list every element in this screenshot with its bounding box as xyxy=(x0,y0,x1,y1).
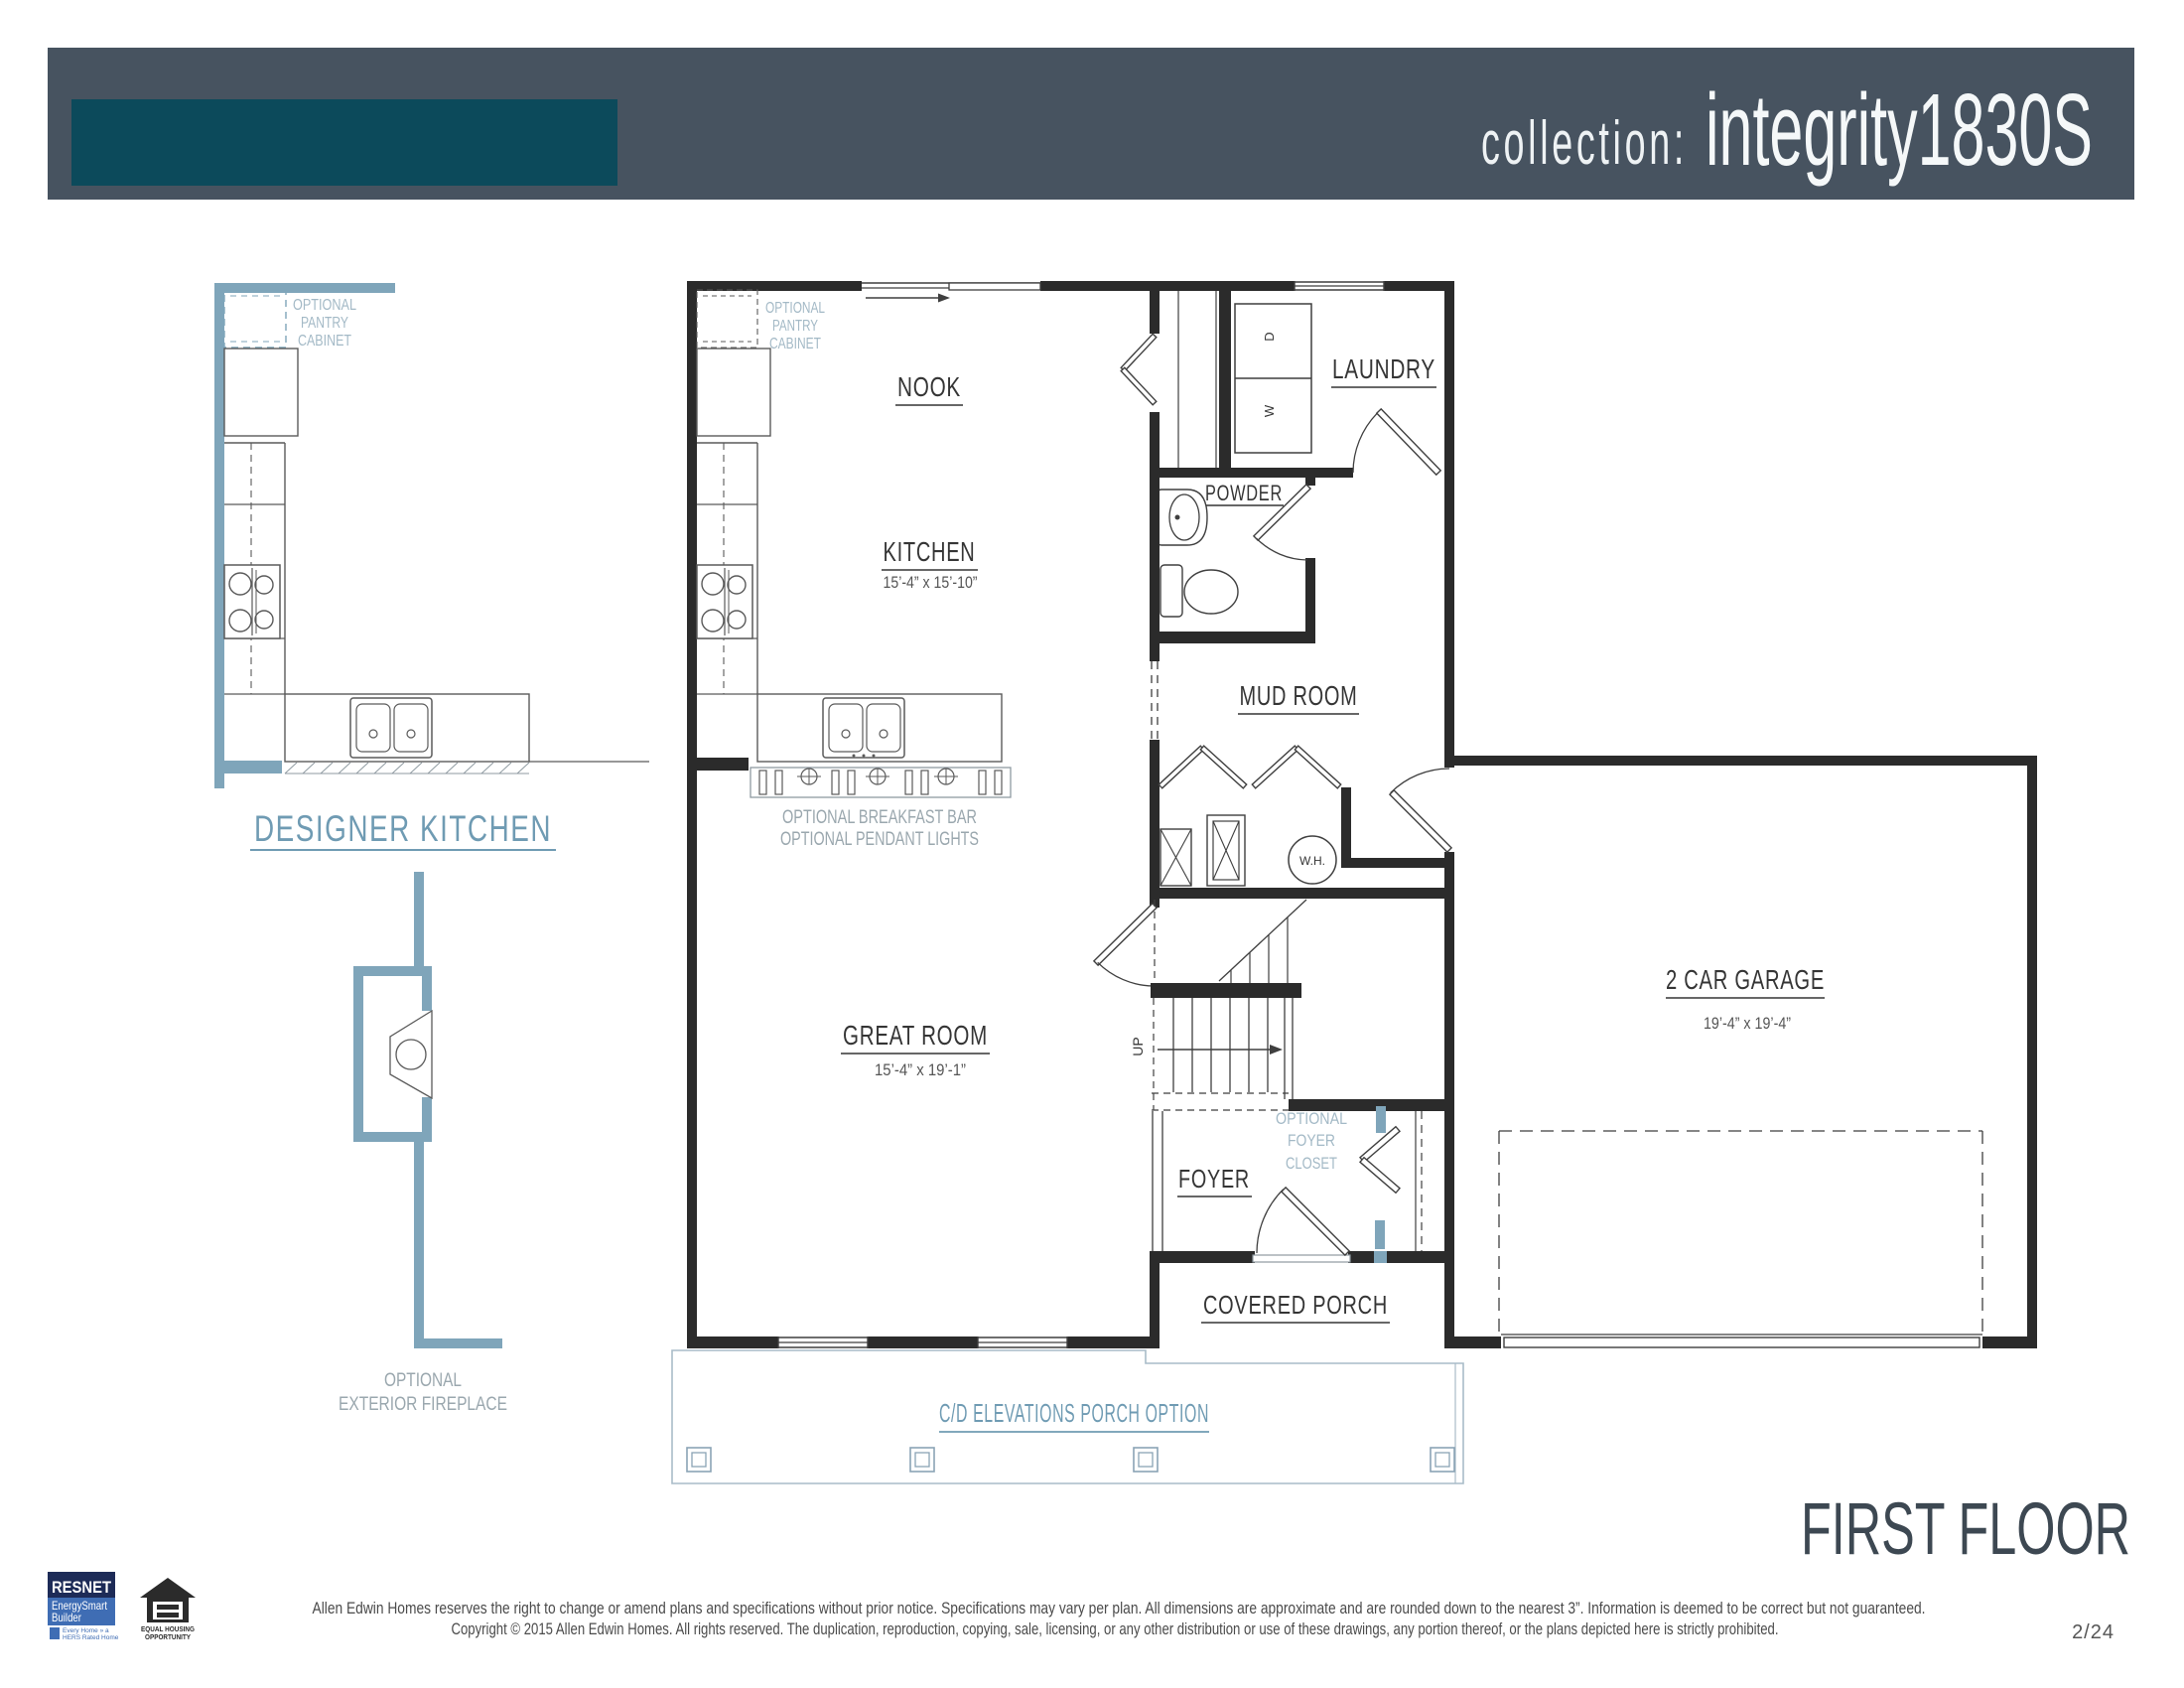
svg-text:PANTRY: PANTRY xyxy=(301,315,348,332)
svg-text:W: W xyxy=(1262,404,1277,417)
svg-text:LAUNDRY: LAUNDRY xyxy=(1332,353,1435,384)
svg-text:FIRST FLOOR: FIRST FLOOR xyxy=(1801,1487,2130,1570)
svg-text:DESIGNER KITCHEN: DESIGNER KITCHEN xyxy=(254,808,552,849)
svg-text:2 CAR GARAGE: 2 CAR GARAGE xyxy=(1666,964,1825,995)
svg-text:2/24: 2/24 xyxy=(2072,1621,2115,1643)
svg-text:15’-4” x 15’-10”: 15’-4” x 15’-10” xyxy=(884,573,978,592)
svg-text:W.H.: W.H. xyxy=(1299,854,1325,868)
svg-text:OPTIONAL: OPTIONAL xyxy=(765,300,825,317)
svg-text:collection:: collection: xyxy=(1481,109,1688,178)
svg-text:MUD ROOM: MUD ROOM xyxy=(1240,680,1358,711)
svg-text:C/D ELEVATIONS PORCH OPTION: C/D ELEVATIONS PORCH OPTION xyxy=(939,1398,1209,1428)
svg-text:CLOSET: CLOSET xyxy=(1286,1154,1337,1173)
svg-text:Every Home » a: Every Home » a xyxy=(63,1627,109,1634)
svg-text:OPTIONAL: OPTIONAL xyxy=(1276,1109,1347,1128)
svg-text:COVERED PORCH: COVERED PORCH xyxy=(1203,1290,1388,1320)
svg-text:PANTRY: PANTRY xyxy=(772,318,818,335)
svg-text:Copyright © 2015 Allen Edwin H: Copyright © 2015 Allen Edwin Homes. All … xyxy=(452,1619,1779,1638)
svg-text:19’-4” x 19’-4”: 19’-4” x 19’-4” xyxy=(1704,1014,1791,1033)
svg-text:OPTIONAL BREAKFAST BAR: OPTIONAL BREAKFAST BAR xyxy=(782,807,977,828)
svg-text:CABINET: CABINET xyxy=(298,333,351,350)
svg-text:15’-4” x 19’-1”: 15’-4” x 19’-1” xyxy=(875,1060,966,1079)
svg-text:Allen Edwin Homes reserves the: Allen Edwin Homes reserves the right to … xyxy=(313,1599,1926,1618)
svg-text:EXTERIOR FIREPLACE: EXTERIOR FIREPLACE xyxy=(339,1394,507,1415)
svg-text:NOOK: NOOK xyxy=(897,371,961,402)
svg-text:OPTIONAL: OPTIONAL xyxy=(384,1370,462,1391)
svg-text:Builder: Builder xyxy=(52,1611,81,1624)
svg-text:OPPORTUNITY: OPPORTUNITY xyxy=(145,1632,191,1641)
svg-text:OPTIONAL: OPTIONAL xyxy=(293,297,356,314)
svg-text:RESNET: RESNET xyxy=(52,1578,112,1597)
svg-text:OPTIONAL PENDANT LIGHTS: OPTIONAL PENDANT LIGHTS xyxy=(780,829,979,850)
svg-text:CABINET: CABINET xyxy=(769,336,821,352)
svg-text:POWDER: POWDER xyxy=(1205,481,1283,505)
svg-text:UP: UP xyxy=(1130,1037,1146,1055)
svg-text:FOYER: FOYER xyxy=(1178,1164,1250,1194)
svg-text:integrity1830S: integrity1830S xyxy=(1706,72,2093,187)
svg-text:D: D xyxy=(1262,332,1277,341)
svg-text:HERS Rated Home: HERS Rated Home xyxy=(63,1634,119,1641)
svg-text:KITCHEN: KITCHEN xyxy=(884,536,976,567)
svg-text:FOYER: FOYER xyxy=(1288,1131,1335,1150)
svg-text:GREAT ROOM: GREAT ROOM xyxy=(843,1020,988,1051)
